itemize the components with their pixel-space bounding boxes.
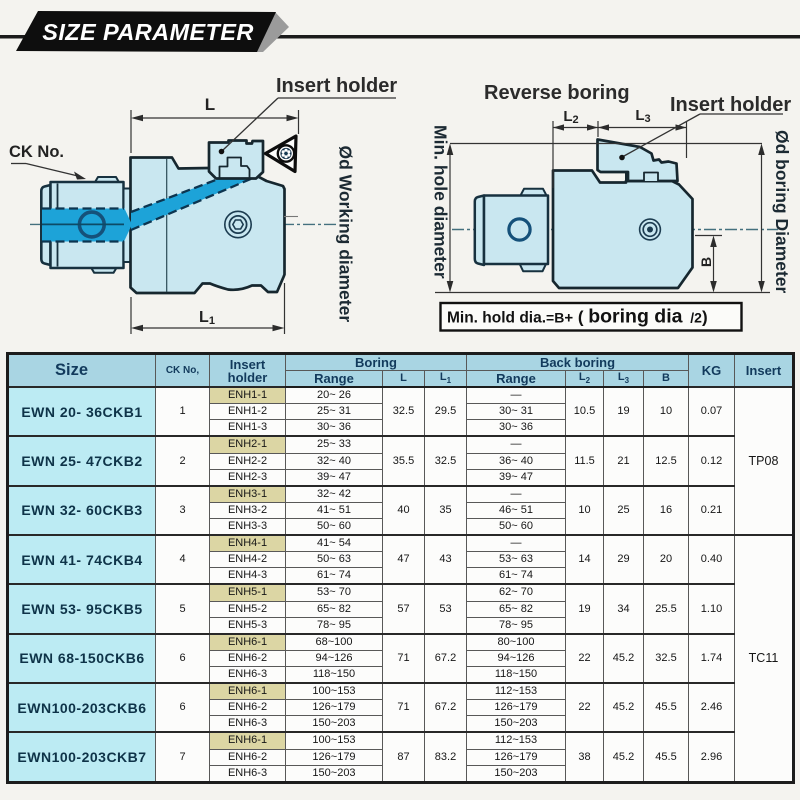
svg-text:Ød boring Diameter: Ød boring Diameter	[772, 130, 792, 294]
svg-text:L1: L1	[199, 309, 215, 327]
svg-text:SIZE PARAMETER: SIZE PARAMETER	[42, 19, 253, 45]
svg-text:L: L	[205, 95, 215, 114]
svg-text:L2: L2	[563, 108, 578, 126]
svg-text:CK No.: CK No.	[9, 143, 64, 161]
svg-text:Min. hole diameter: Min. hole diameter	[431, 125, 451, 279]
svg-text:B: B	[698, 257, 714, 267]
svg-text:Reverse boring: Reverse boring	[484, 82, 630, 104]
svg-text:Ød Working diameter: Ød Working diameter	[336, 146, 356, 323]
svg-text:Insert holder: Insert holder	[276, 75, 397, 97]
svg-text:Min. hold dia.=B+ ( boring dia: Min. hold dia.=B+ ( boring dia /2)	[447, 306, 708, 328]
svg-text:Insert holder: Insert holder	[670, 94, 791, 116]
svg-text:L3: L3	[635, 107, 650, 125]
